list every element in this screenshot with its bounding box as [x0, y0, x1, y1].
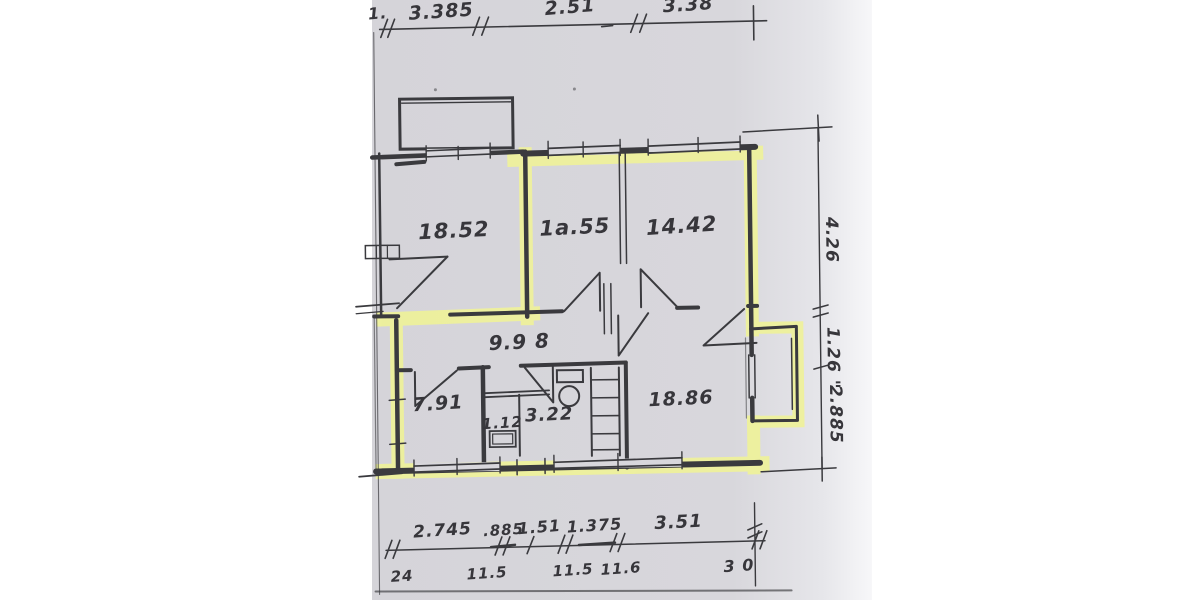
paper-sheet: [372, 0, 872, 600]
dim-right-0: 4.26: [821, 216, 842, 263]
room-area-label-bottom-right: 18.86: [648, 386, 714, 411]
room-area-label-top-middle: 1a.55: [539, 213, 611, 240]
dim-top-0: 1.: [367, 3, 388, 24]
wall-mark-1: 11.5: [466, 563, 508, 584]
room-area-label-top-left: 18.52: [418, 217, 490, 244]
scanned-floor-plan: 18.52 1a.55 14.42 9.9 8 7.91 1.12 3.22 1…: [0, 0, 1200, 600]
dim-bottom-3: 1.375: [566, 514, 623, 537]
dim-right-1: 1.26 ": [822, 327, 843, 390]
dim-bottom-4: 3.51: [654, 511, 703, 534]
dim-bottom-2: 1.51: [517, 516, 562, 538]
wall-mark-3: 11.6: [600, 558, 642, 579]
room-area-label-top-right: 14.42: [645, 211, 718, 240]
room-area-label-bottom-left: 7.91: [412, 391, 464, 416]
room-area-label-hallway: 9.9 8: [488, 328, 550, 355]
room-area-label-bathroom: 3.22: [525, 403, 574, 426]
room-area-label-wc: 1.12: [481, 413, 523, 434]
wall-mark-0: 24: [390, 566, 414, 585]
floor-plan-svg: 18.52 1a.55 14.42 9.9 8 7.91 1.12 3.22 1…: [0, 0, 1200, 600]
wall-mark-2: 11.5: [552, 560, 594, 581]
wall-mark-4: 3 0: [723, 555, 755, 576]
dim-right-2: 2.885: [825, 385, 846, 444]
dim-bottom-0: 2.745: [413, 519, 473, 543]
dim-top-1: 3.385: [408, 0, 474, 25]
